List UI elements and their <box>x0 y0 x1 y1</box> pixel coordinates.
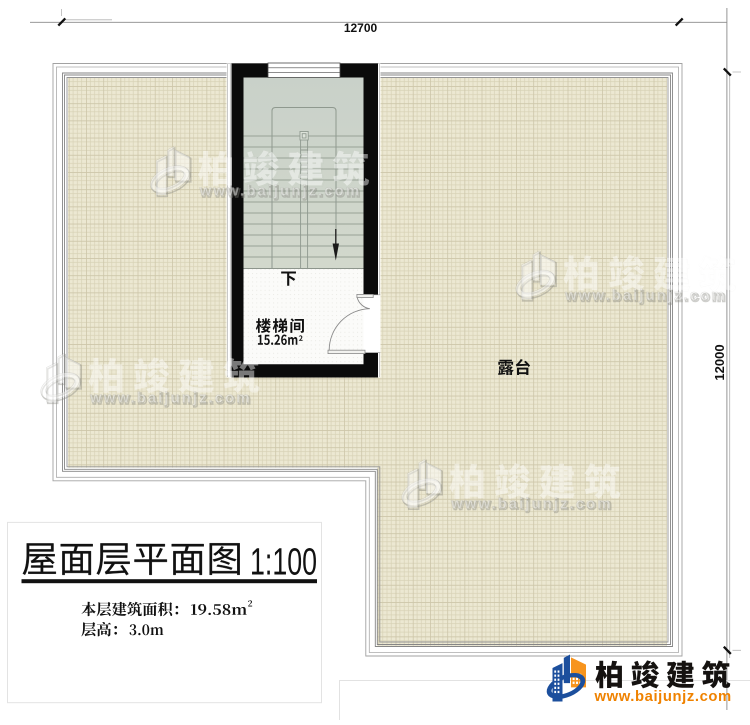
svg-text:12000: 12000 <box>712 344 727 380</box>
svg-text:www.baijunjz.com: www.baijunjz.com <box>199 183 361 200</box>
svg-text:www.baijunjz.com: www.baijunjz.com <box>564 287 726 304</box>
svg-text:www.baijunjz.com: www.baijunjz.com <box>450 495 612 512</box>
svg-text:12700: 12700 <box>344 21 378 35</box>
svg-text:1:100: 1:100 <box>250 542 317 584</box>
svg-text:www.baijunjz.com: www.baijunjz.com <box>89 390 251 407</box>
svg-text:www.baijunjz.com: www.baijunjz.com <box>594 689 732 705</box>
